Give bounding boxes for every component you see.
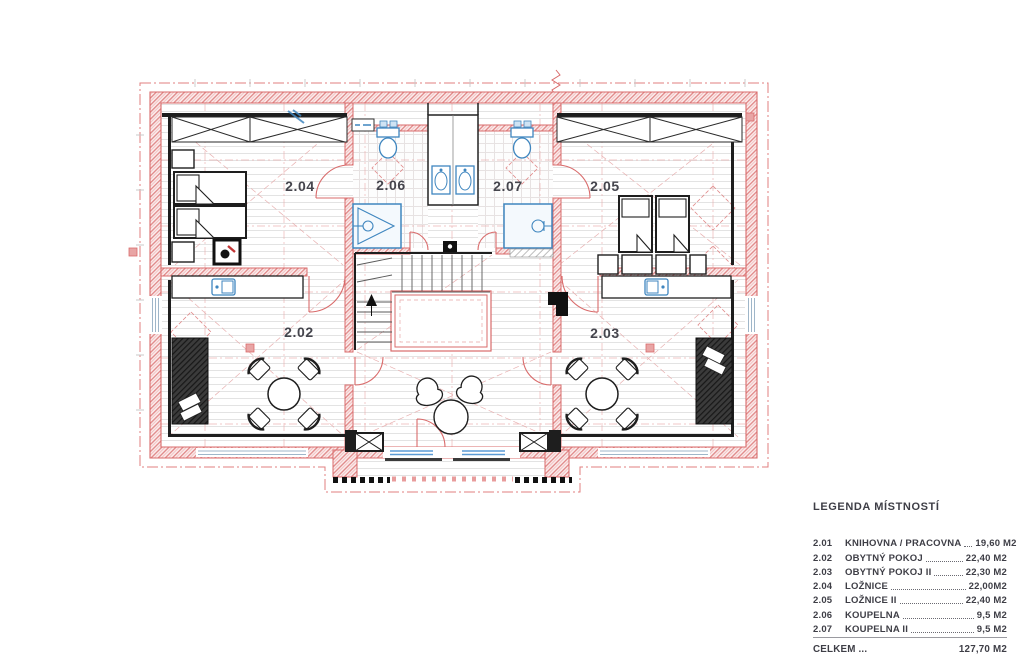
legend-room-area: 22,30 M2 [966,567,1007,578]
legend-room-area: 22,40 M2 [966,553,1007,564]
wardrobe-band-left [172,117,347,142]
legend-room-number: 2.05 [813,595,845,606]
floor-plan-sheet: { "plan": { "room_labels": [ {"id": "2.0… [0,0,1024,669]
legend-room-name: LOŽNICE [845,581,888,592]
stove-icon [214,240,240,264]
bench [598,255,618,274]
floor-transition [510,249,553,257]
legend-room-name: KNIHOVNA / PRACOVNA [845,538,961,549]
legend-room-number: 2.02 [813,553,845,564]
bathroom-core [428,115,478,205]
sofa-left [172,338,208,424]
counter-right [602,276,731,298]
legend-row: 2.06 KOUPELNA 9,5 M2 [813,606,1007,620]
room-label-2-04: 2.04 [285,178,315,194]
room-legend: LEGENDA MÍSTNOSTÍ 2.01 KNIHOVNA / PRACOV… [813,501,1007,655]
legend-room-number: 2.07 [813,624,845,635]
legend-room-name: KOUPELNA [845,610,900,621]
legend-room-area: 22,40 M2 [966,595,1007,606]
wardrobe-band-right [557,117,742,142]
dotted-leader [911,632,974,633]
room-label-2-05: 2.05 [590,178,620,194]
legend-title: LEGENDA MÍSTNOSTÍ [813,501,1007,513]
dotted-leader [934,575,962,576]
legend-total-area: 127,70 M2 [959,644,1007,655]
legend-row: 2.07 KOUPELNA II 9,5 M2 [813,621,1007,635]
legend-room-number: 2.04 [813,581,845,592]
dotted-leader [964,546,972,547]
counter-left [172,276,303,298]
sofa-right [696,338,732,424]
legend-room-name: OBYTNÝ POKOJ [845,553,923,564]
room-label-2-06: 2.06 [376,177,406,193]
legend-room-area: 9,5 M2 [977,610,1007,621]
legend-total-label: CELKEM ... [813,644,959,655]
legend-row: 2.04 LOŽNICE 22,00M2 [813,578,1007,592]
dotted-leader [926,561,963,562]
room-label-2-02: 2.02 [284,324,314,340]
bench [690,255,706,274]
round-table [434,400,468,434]
legend-row: 2.02 OBYTNÝ POKOJ 22,40 M2 [813,549,1007,563]
dotted-leader [891,589,966,590]
nightstand [172,150,194,168]
legend-row: 2.03 OBYTNÝ POKOJ II 22,30 M2 [813,564,1007,578]
round-table [586,378,618,410]
legend-room-name: LOŽNICE II [845,595,897,606]
nightstand [172,242,194,262]
bench [622,255,652,274]
legend-room-area: 19,60 M2 [975,538,1016,549]
shower-icon [504,204,552,248]
dotted-leader [900,603,963,604]
washbasin-icon [456,166,474,194]
dotted-leader [903,618,974,619]
legend-row: 2.05 LOŽNICE II 22,40 M2 [813,592,1007,606]
room-label-2-03: 2.03 [590,325,620,341]
legend-total-row: CELKEM ... 127,70 M2 [813,637,1007,655]
legend-room-area: 22,00M2 [969,581,1007,592]
room-label-2-07: 2.07 [493,178,523,194]
legend-room-name: KOUPELNA II [845,624,908,635]
round-table [268,378,300,410]
washbasin-icon [432,166,450,194]
legend-room-area: 9,5 M2 [977,624,1007,635]
legend-room-name: OBYTNÝ POKOJ II [845,567,931,578]
legend-room-number: 2.03 [813,567,845,578]
legend-row: 2.01 KNIHOVNA / PRACOVNA 19,60 M2 [813,535,1007,549]
bench [656,255,686,274]
shower-icon [353,204,401,248]
legend-room-number: 2.06 [813,610,845,621]
legend-room-number: 2.01 [813,538,845,549]
